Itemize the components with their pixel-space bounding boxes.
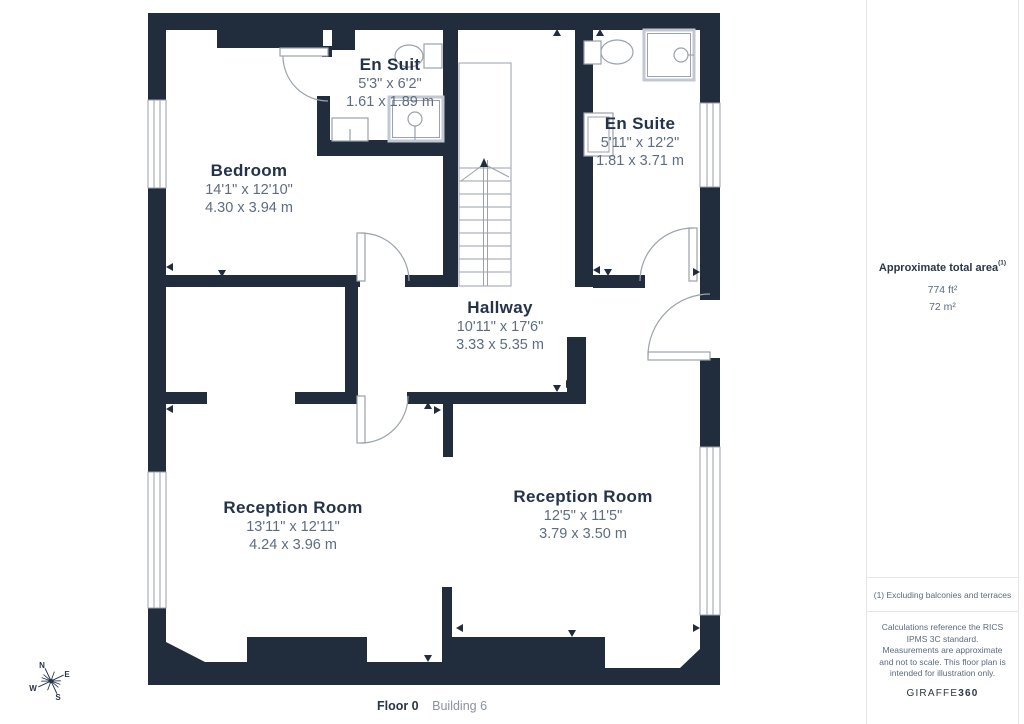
toilet-icon	[584, 41, 601, 64]
floor-caption: Floor 0 Building 6	[377, 699, 487, 713]
exclusion-note: (1) Excluding balconies and terraces	[867, 577, 1018, 612]
info-sidebar: Approximate total area(1) 774 ft² 72 m² …	[866, 0, 1019, 724]
room-dims-m: 4.24 x 3.96 m	[223, 536, 362, 554]
room-name: En Suit	[346, 54, 434, 75]
brand-name: GIRAFFE	[906, 688, 958, 699]
room-dims-ft: 14'1" x 12'10"	[205, 181, 293, 199]
stairs	[459, 63, 511, 286]
compass-icon: N E W S	[14, 644, 88, 718]
room-dims-ft: 5'11" x 12'2"	[596, 134, 684, 152]
compass-rays	[32, 662, 69, 699]
room-dims-m: 1.81 x 3.71 m	[596, 152, 684, 170]
room-label-ensuit: En Suit 5'3" x 6'2" 1.61 x 1.89 m	[346, 54, 434, 111]
total-area-title: Approximate total area	[879, 262, 998, 274]
room-name: En Suite	[596, 113, 684, 134]
room-dims-m: 3.33 x 5.35 m	[456, 336, 544, 354]
room-name: Reception Room	[223, 497, 362, 518]
room-label-ensuite: En Suite 5'11" x 12'2" 1.81 x 3.71 m	[596, 113, 684, 170]
total-area-ft: 774 ft²	[867, 282, 1018, 299]
room-dims-m: 4.30 x 3.94 m	[205, 199, 293, 217]
total-area-m: 72 m²	[867, 299, 1018, 316]
room-dims-ft: 5'3" x 6'2"	[346, 75, 434, 93]
stairs-up-arrow	[480, 158, 488, 167]
room-dims-m: 1.61 x 1.89 m	[346, 93, 434, 111]
room-label-hallway: Hallway 10'11" x 17'6" 3.33 x 5.35 m	[456, 297, 544, 354]
room-name: Bedroom	[205, 160, 293, 181]
total-area-block: Approximate total area(1) 774 ft² 72 m²	[867, 258, 1018, 316]
giraffe360-logo: GIRAFFE360	[867, 688, 1018, 699]
disclaimer-text: Calculations reference the RICS IPMS 3C …	[867, 622, 1018, 680]
room-name: Reception Room	[513, 486, 652, 507]
total-area-superscript: (1)	[998, 260, 1006, 267]
compass-e: E	[64, 670, 70, 679]
room-label-bedroom: Bedroom 14'1" x 12'10" 4.30 x 3.94 m	[205, 160, 293, 217]
room-dims-ft: 10'11" x 17'6"	[456, 318, 544, 336]
compass-w: W	[29, 684, 37, 693]
compass-n: N	[39, 661, 45, 670]
room-dims-ft: 13'11" x 12'11"	[223, 518, 362, 536]
room-label-reception-right: Reception Room 12'5" x 11'5" 3.79 x 3.50…	[513, 486, 652, 543]
floor-label: Floor 0	[377, 699, 419, 713]
room-name: Hallway	[456, 297, 544, 318]
compass-s: S	[55, 693, 61, 702]
floor-plan	[0, 0, 870, 724]
building-label: Building 6	[432, 699, 487, 713]
room-dims-ft: 12'5" x 11'5"	[513, 507, 652, 525]
room-dims-m: 3.79 x 3.50 m	[513, 525, 652, 543]
brand-suffix: 360	[958, 688, 978, 699]
room-label-reception-left: Reception Room 13'11" x 12'11" 4.24 x 3.…	[223, 497, 362, 554]
